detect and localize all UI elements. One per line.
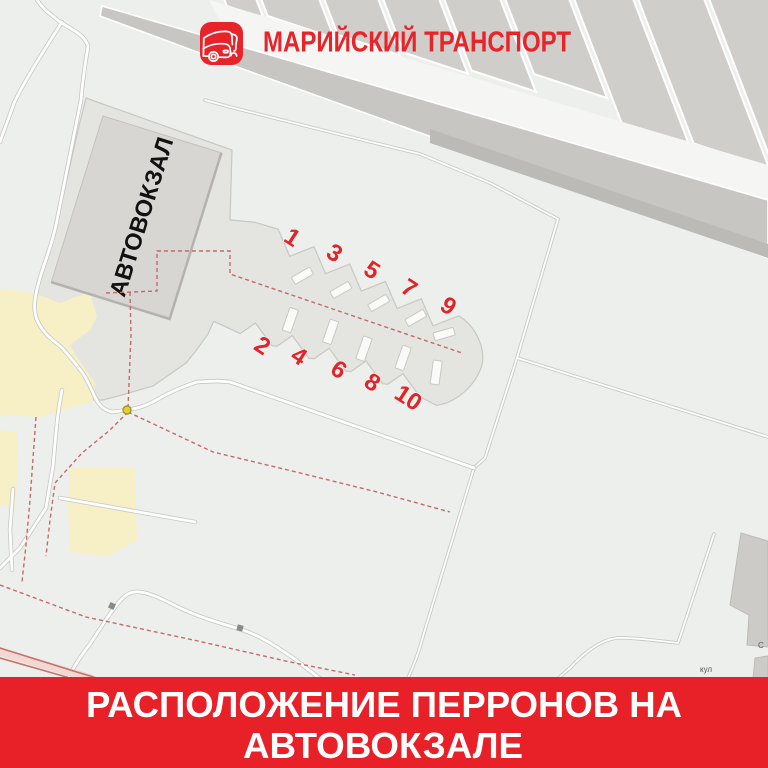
svg-text:РАСПОЛОЖЕНИЕ ПЕРРОНОВ НА: РАСПОЛОЖЕНИЕ ПЕРРОНОВ НА xyxy=(86,684,682,725)
svg-text:С: С xyxy=(758,641,764,650)
svg-text:кул: кул xyxy=(700,665,712,674)
svg-text:АВТОВОКЗАЛЕ: АВТОВОКЗАЛЕ xyxy=(243,725,523,766)
svg-text:МАРИЙСКИЙ ТРАНСПОРТ: МАРИЙСКИЙ ТРАНСПОРТ xyxy=(263,26,571,59)
